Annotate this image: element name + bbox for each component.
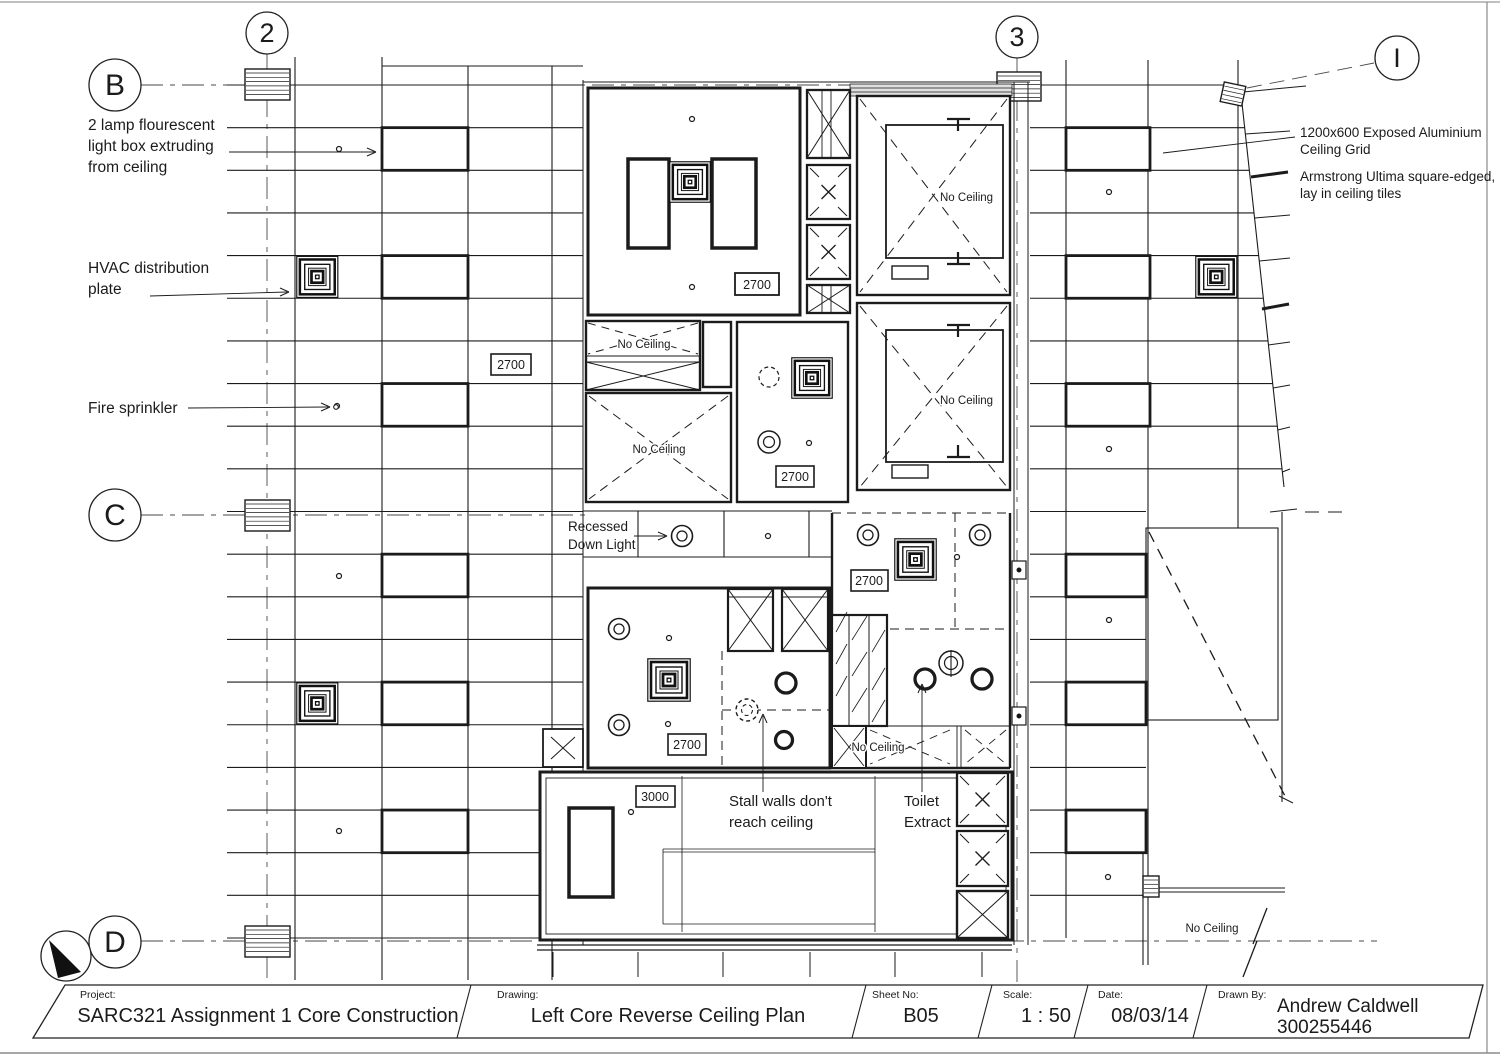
drawing-value: Left Core Reverse Ceiling Plan	[531, 1005, 806, 1027]
grid-tick	[1268, 342, 1290, 345]
hvac-note: HVAC distribution	[88, 260, 209, 277]
ceiling-height-label: 3000	[641, 790, 669, 804]
grid-line-I	[1247, 63, 1374, 88]
open-region-diagonal	[1149, 532, 1286, 798]
extract-vent	[915, 669, 935, 689]
grid-bubble-2-label: 2	[259, 18, 274, 48]
fluorescent-light-box	[1066, 384, 1150, 427]
fire-sprinkler	[666, 722, 671, 727]
drawn-by-label: Drawn By:	[1218, 989, 1266, 1001]
sheet-no-value: B05	[903, 1005, 939, 1027]
plan-line	[1279, 796, 1293, 803]
fluorescent-light-box	[1066, 810, 1146, 853]
lamp-note: from ceiling	[88, 159, 167, 176]
no-ceiling-label: No Ceiling	[617, 339, 670, 351]
grid-tick	[1278, 427, 1290, 430]
grid-tick	[1255, 215, 1290, 218]
grid-bubble-I-label: I	[1393, 43, 1401, 73]
fire-sprinkler	[337, 147, 342, 152]
ceiling-grid-note: Ceiling Grid	[1300, 142, 1371, 157]
right-ceiling-grid	[1030, 60, 1343, 977]
plan-line	[1270, 509, 1297, 512]
open-region	[1146, 528, 1278, 720]
tile-note-leader	[1262, 304, 1289, 309]
plan-rect	[703, 322, 731, 387]
ceiling-tile-note: lay in ceiling tiles	[1300, 186, 1402, 201]
ceiling-height-label: 2700	[743, 278, 771, 292]
fire-sprinkler	[337, 574, 342, 579]
column-hatched	[245, 69, 290, 100]
fire-sprinkler	[334, 405, 339, 410]
plan-line	[367, 148, 376, 152]
fluorescent-light-box	[1066, 554, 1146, 597]
hvac-diffuser	[1196, 256, 1237, 297]
stall-walls-note: Stall walls don't	[729, 793, 833, 810]
column-hatched	[1143, 876, 1159, 897]
recessed-downlight	[614, 624, 624, 634]
grid-tick	[1282, 469, 1290, 472]
leader-grid-note	[1163, 137, 1295, 153]
plan-line	[321, 403, 330, 407]
plan-line	[658, 536, 667, 540]
column-hatched	[245, 69, 290, 100]
date-value: 08/03/14	[1111, 1005, 1189, 1027]
north-arrow	[41, 931, 91, 981]
column-hatched	[1220, 82, 1246, 106]
recessed-downlight	[614, 720, 624, 730]
recessed-downlight-note: Down Light	[568, 537, 636, 552]
break-mark	[1243, 941, 1257, 977]
fire-sprinkler	[629, 810, 634, 815]
recessed-downlight	[863, 530, 873, 540]
recessed-downlight	[764, 437, 775, 448]
no-ceiling-label: No Ceiling	[940, 395, 993, 407]
grid-tick	[1259, 258, 1290, 261]
ceiling-plan-svg: 2 3 I B C D 2 lamp flourescent light box…	[0, 0, 1500, 1060]
plan-line	[658, 532, 667, 536]
leader-hvac	[150, 292, 287, 296]
ceiling-grid-note: 1200x600 Exposed Aluminium	[1300, 125, 1482, 140]
break-mark	[1253, 908, 1267, 944]
ceiling-height-label: 2700	[855, 574, 883, 588]
fire-sprinkler	[1107, 190, 1112, 195]
fluorescent-light-box	[382, 256, 468, 299]
recessed-downlight	[677, 531, 687, 541]
hvac-diffuser	[670, 162, 710, 202]
fluorescent-light-box	[1066, 128, 1150, 171]
fire-sprinkler	[807, 441, 812, 446]
hvac-diffuser	[297, 256, 338, 297]
plan-circle	[742, 705, 753, 716]
grid-bubble-B-label: B	[105, 69, 125, 102]
fluorescent-light-box	[382, 810, 468, 853]
fluorescent-light-box	[382, 384, 468, 427]
column-hatched	[245, 500, 290, 531]
plan-circle	[1017, 568, 1021, 572]
recessed-downlight	[759, 367, 779, 387]
leader-fire	[188, 407, 328, 408]
sheet-no-label: Sheet No:	[872, 989, 919, 1001]
ceiling-height-label: 2700	[781, 470, 809, 484]
fluorescent-light-box	[1066, 256, 1150, 299]
plan-line	[367, 152, 376, 156]
fire-sprinkler	[1107, 447, 1112, 452]
grid-bubble-C-label: C	[104, 499, 126, 532]
scale-label: Scale:	[1003, 989, 1032, 1001]
fire-sprinkler	[690, 285, 695, 290]
drawing-sheet: 2 3 I B C D 2 lamp flourescent light box…	[0, 0, 1500, 1060]
plan-circle	[1017, 714, 1021, 718]
fire-sprinkler-note: Fire sprinkler	[88, 400, 178, 417]
title-block: Project: SARC321 Assignment 1 Core Const…	[33, 985, 1483, 1038]
ceiling-height-label: 2700	[673, 738, 701, 752]
project-value: SARC321 Assignment 1 Core Construction	[77, 1005, 458, 1027]
fire-sprinkler	[766, 534, 771, 539]
hvac-note: plate	[88, 281, 122, 298]
ceiling-tile-note: Armstrong Ultima square-edged,	[1300, 169, 1495, 184]
grid-tick	[1245, 131, 1290, 134]
no-ceiling-label: No Ceiling	[632, 444, 685, 456]
scale-value: 1 : 50	[1021, 1005, 1071, 1027]
plan-line	[280, 288, 289, 292]
fire-sprinkler	[690, 117, 695, 122]
plan-line	[321, 407, 330, 411]
lamp-note: light box extruding	[88, 138, 214, 155]
date-label: Date:	[1098, 989, 1123, 1001]
hvac-diffuser	[792, 358, 832, 398]
no-ceiling-label: No Ceiling	[1185, 923, 1238, 935]
toilet-extract-note: Toilet	[904, 793, 940, 810]
column-hatched	[1143, 876, 1159, 897]
lamp-note: 2 lamp flourescent	[88, 117, 215, 134]
recessed-downlight-note: Recessed	[568, 519, 628, 534]
toilet-extract-note: Extract	[904, 814, 952, 831]
fire-sprinkler	[1106, 875, 1111, 880]
column-hatched	[245, 926, 290, 957]
fluorescent-light-box	[382, 554, 468, 597]
grid-tick	[1273, 385, 1290, 388]
hvac-diffuser	[297, 683, 338, 724]
hvac-diffuser	[895, 539, 936, 580]
extract-vent	[776, 673, 796, 693]
riser-shaft	[832, 615, 887, 726]
column-hatched	[245, 926, 290, 957]
hvac-diffuser	[648, 659, 690, 701]
fluorescent-light-box	[382, 682, 468, 725]
ceiling-height-label: 2700	[497, 358, 525, 372]
no-ceiling-label: No Ceiling	[851, 742, 904, 754]
no-ceiling-label: No Ceiling	[940, 192, 993, 204]
wall-band	[850, 84, 1012, 96]
fire-sprinkler	[337, 829, 342, 834]
extract-vent	[776, 732, 793, 749]
drawn-by-id: 300255446	[1277, 1017, 1372, 1038]
project-label: Project:	[80, 989, 116, 1001]
fire-sprinkler	[667, 636, 672, 641]
extract-vent	[972, 669, 992, 689]
drawing-label: Drawing:	[497, 989, 538, 1001]
fluorescent-light-box	[1066, 682, 1146, 725]
grid-bubble-D-label: D	[104, 926, 126, 959]
recessed-downlight	[975, 530, 985, 540]
column-hatched	[245, 500, 290, 531]
stall-walls-note: reach ceiling	[729, 814, 813, 831]
tile-note-leader	[1251, 172, 1288, 177]
grid-bubble-3-label: 3	[1009, 22, 1024, 52]
drawn-by-name: Andrew Caldwell	[1277, 996, 1419, 1017]
fire-sprinkler	[1107, 618, 1112, 623]
fluorescent-light-box	[382, 128, 468, 171]
